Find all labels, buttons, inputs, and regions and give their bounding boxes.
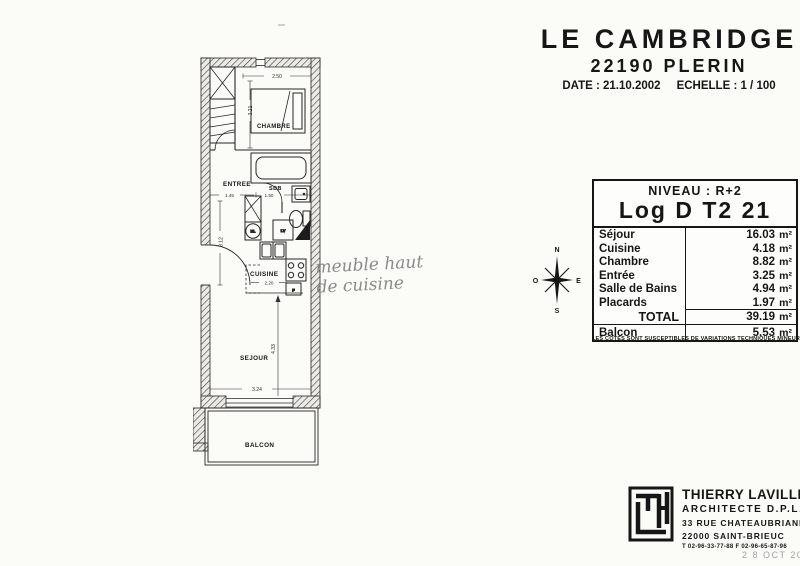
- date-stamp: 2 8 OCT 2002: [742, 550, 800, 560]
- total-label: TOTAL: [594, 310, 685, 324]
- niveau-label: NIVEAU : R+2: [594, 181, 796, 198]
- row-label: Entrée: [594, 270, 685, 282]
- bathtub-icon: [251, 153, 311, 183]
- dim-cuisine-width: 2.20: [265, 281, 274, 286]
- row-value: 16.03: [746, 229, 775, 241]
- room-label-cuisine: CUISINE: [250, 271, 278, 278]
- entrance-door: [201, 245, 251, 285]
- row-unit: m²: [775, 311, 792, 323]
- dim-chambre-width: 2.50: [272, 74, 282, 80]
- washer-label: ML: [251, 230, 256, 234]
- scan-artifact: [278, 24, 285, 26]
- row-label: Cuisine: [594, 243, 685, 255]
- scale-label: ECHELLE : 1 / 100: [677, 80, 776, 92]
- dishwasher-icon: LV: [273, 220, 310, 240]
- row-value: 3.25: [753, 270, 775, 282]
- row-label: Chambre: [594, 256, 685, 268]
- room-label-chambre: CHAMBRE: [257, 124, 290, 130]
- fridge-label: F: [292, 288, 295, 293]
- balcony-window: [226, 399, 293, 408]
- compass-east-point: [557, 278, 573, 283]
- scanned-floor-plan-page: ML LV F: [0, 0, 800, 566]
- table-row: Placards 1.97m²: [594, 296, 796, 310]
- table-row-total: TOTAL 39.19m²: [594, 309, 796, 325]
- table-row: Entrée 3.25m²: [594, 269, 796, 283]
- dim-sdb-width: 1.50: [265, 193, 274, 198]
- dim-sejour-width: 3.24: [252, 387, 262, 393]
- room-label-balcon: BALCON: [245, 442, 274, 449]
- logo-monogram-tlh: [636, 492, 667, 534]
- total-value: 39.19: [746, 311, 775, 323]
- row-unit: m²: [775, 243, 792, 255]
- balcony-outline: [205, 408, 318, 465]
- architect-text: THIERRY LAVILLE ARCHITECTE D.P.L.G. 33 R…: [682, 486, 800, 550]
- row-label: Salle de Bains: [594, 283, 685, 295]
- kitchen-sink-icon: [260, 242, 286, 259]
- compass-e: E: [576, 278, 581, 285]
- compass-s: S: [555, 308, 560, 314]
- washbasin-icon: [292, 186, 310, 202]
- table-row: Chambre 8.82m²: [594, 255, 796, 269]
- unit-id: Log D T2 21: [594, 198, 796, 226]
- project-location: 22190 PLERIN: [540, 56, 798, 77]
- architect-logo: [628, 486, 674, 542]
- dishwasher-label: LV: [281, 228, 286, 233]
- row-value: 8.82: [753, 256, 775, 268]
- compass-south-point: [555, 280, 560, 304]
- compass-rose: N S O E: [531, 242, 583, 314]
- dim-chambre-height: 3.21: [248, 105, 254, 115]
- table-footnote: LES COTES SONT SUSCEPTIBLES DE VARIATION…: [592, 336, 800, 342]
- row-label: Séjour: [594, 229, 685, 241]
- top-window: [256, 60, 265, 66]
- table-row: Salle de Bains 4.94m²: [594, 282, 796, 296]
- date-label: DATE : 21.10.2002: [562, 80, 660, 92]
- compass-n: N: [554, 247, 559, 254]
- stove-icon: [286, 259, 306, 281]
- row-unit: m²: [775, 270, 792, 282]
- wardrobe-icon: [210, 67, 235, 143]
- row-value: 4.94: [753, 283, 775, 295]
- handwritten-note-line2: de cuisine: [316, 273, 425, 299]
- floor-plan-drawing: ML LV F: [193, 53, 331, 471]
- title-block: LE CAMBRIDGE 22190 PLERIN DATE : 21.10.2…: [540, 24, 798, 92]
- room-label-sdb: SDB: [269, 186, 282, 192]
- row-unit: m²: [775, 256, 792, 268]
- architect-name: THIERRY LAVILLE: [682, 487, 800, 502]
- dim-entree-width: 1.45: [225, 193, 234, 198]
- compass-o: O: [533, 278, 539, 285]
- row-value: 1.97: [753, 297, 775, 309]
- table-row: Cuisine 4.18m²: [594, 242, 796, 256]
- date-scale-line: DATE : 21.10.2002 ECHELLE : 1 / 100: [540, 80, 798, 92]
- architect-address1: 33 RUE CHATEAUBRIAND: [682, 518, 800, 528]
- project-title: LE CAMBRIDGE: [540, 24, 798, 55]
- dim-entree-height: 3.12: [219, 237, 225, 247]
- row-value: 4.18: [753, 243, 775, 255]
- unit-area-table: NIVEAU : R+2 Log D T2 21 Séjour 16.03m² …: [592, 179, 798, 342]
- row-label: Placards: [594, 297, 685, 309]
- area-rows: Séjour 16.03m² Cuisine 4.18m² Chambre 8.…: [594, 226, 796, 340]
- compass-center: [555, 278, 558, 281]
- architect-address2: 22000 SAINT-BRIEUC: [682, 531, 800, 541]
- room-label-sejour: SEJOUR: [240, 355, 268, 362]
- row-unit: m²: [775, 297, 792, 309]
- compass-north-point: [555, 256, 560, 280]
- architect-block: THIERRY LAVILLE ARCHITECTE D.P.L.G. 33 R…: [628, 486, 800, 550]
- row-unit: m²: [775, 229, 792, 241]
- dim-sejour-height: 4.33: [271, 344, 277, 354]
- architect-title: ARCHITECTE D.P.L.G.: [682, 504, 800, 515]
- room-label-entree: ENTREE: [223, 181, 251, 188]
- washing-machine-icon: ML: [245, 196, 261, 240]
- handwritten-note: meuble haut de cuisine: [315, 252, 425, 298]
- table-row: Séjour 16.03m²: [594, 228, 796, 242]
- row-unit: m²: [775, 283, 792, 295]
- compass-west-point: [541, 278, 557, 283]
